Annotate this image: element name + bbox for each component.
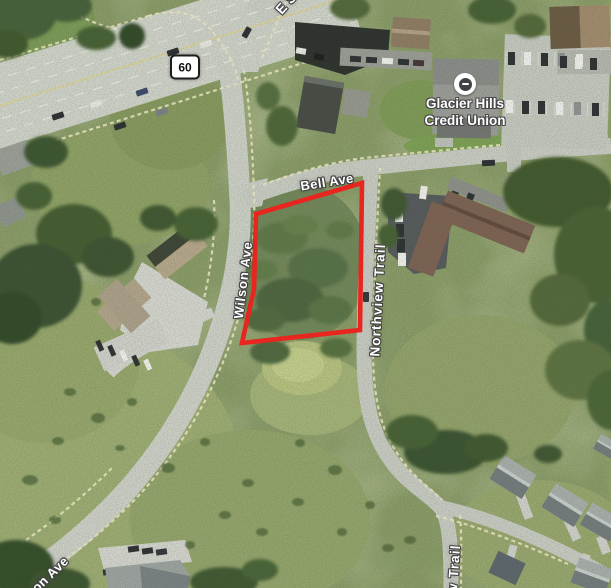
poi-name-line1: Glacier Hills bbox=[425, 95, 506, 112]
highway-60-shield: 60 bbox=[170, 55, 200, 80]
bank-icon-glyph bbox=[459, 78, 472, 91]
bank-icon[interactable] bbox=[454, 73, 476, 95]
photo-grain bbox=[0, 0, 611, 588]
map-viewport[interactable]: Bell Ave Wilson Ave Wilson Ave Northview… bbox=[0, 0, 611, 588]
poi-label-glacier-hills-credit-union[interactable]: Glacier Hills Credit Union bbox=[425, 95, 506, 129]
satellite-map[interactable] bbox=[0, 0, 611, 588]
highway-60-number: 60 bbox=[178, 60, 191, 74]
poi-name-line2: Credit Union bbox=[425, 112, 506, 129]
